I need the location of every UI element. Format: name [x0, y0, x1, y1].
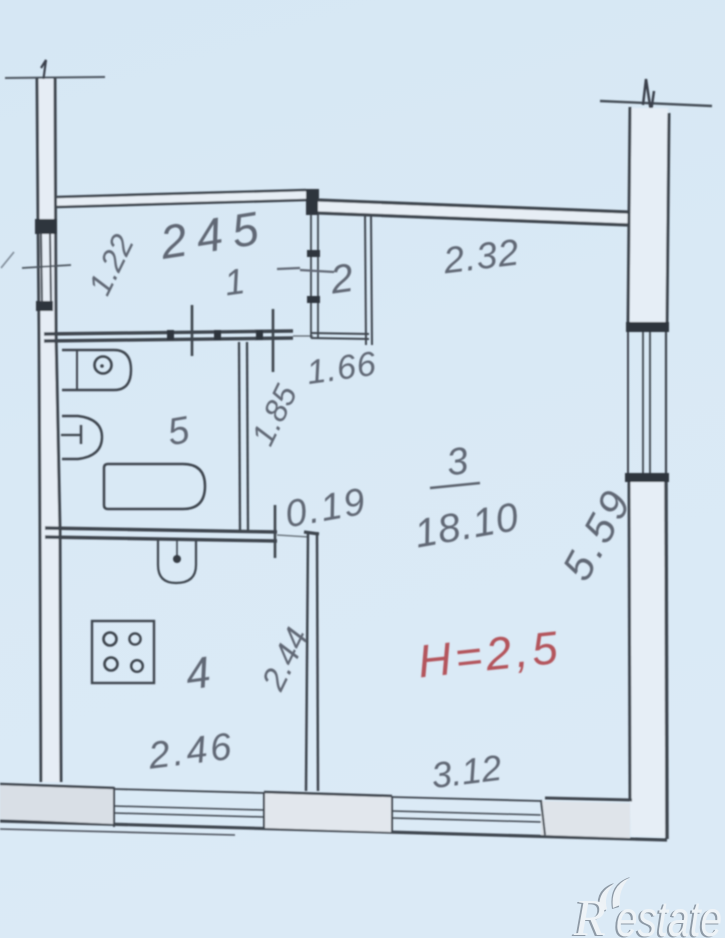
svg-text:estate: estate — [616, 890, 722, 938]
svg-text:R: R — [573, 890, 606, 938]
svg-text:3.12: 3.12 — [429, 747, 504, 796]
